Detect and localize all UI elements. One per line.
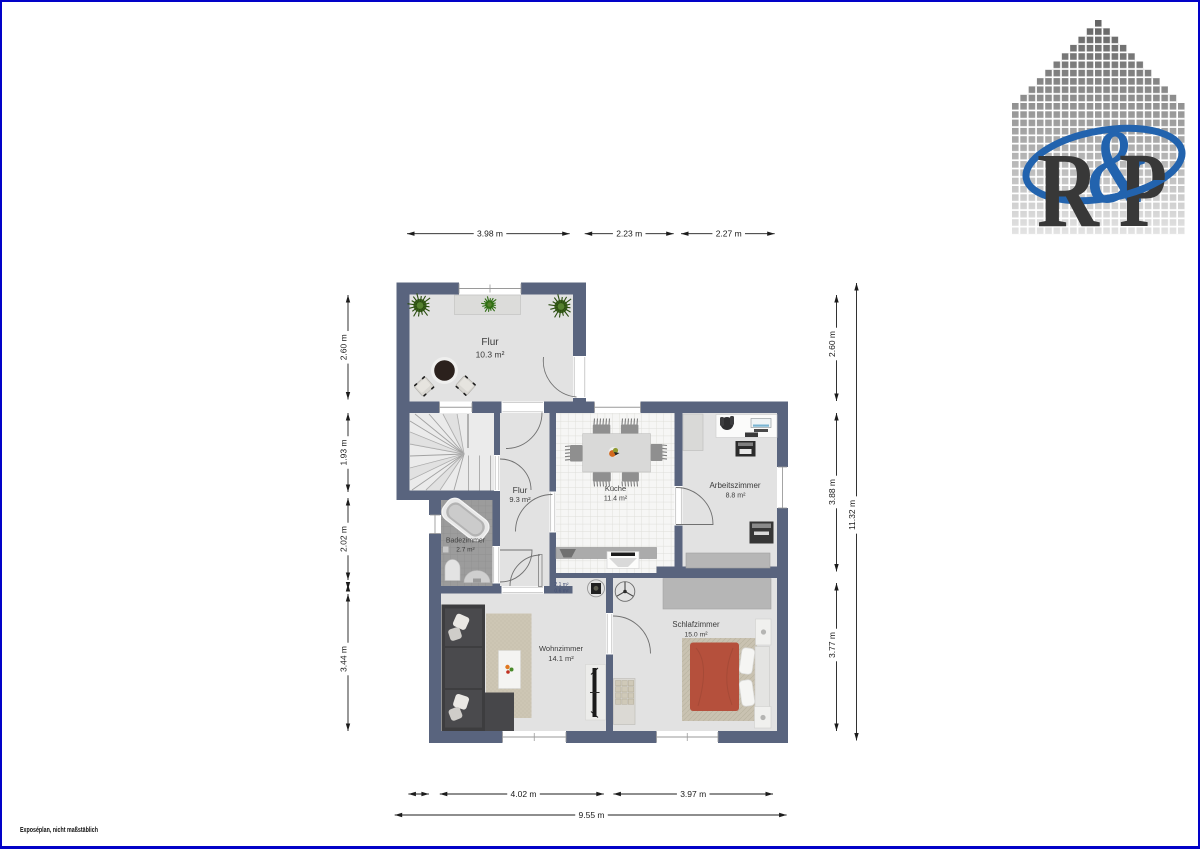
svg-text:11.4 m²: 11.4 m² [604,496,628,503]
svg-text:Flur: Flur [513,485,528,495]
svg-text:Küche: Küche [605,484,626,493]
svg-text:0.6 m²: 0.6 m² [554,589,569,595]
svg-text:Schlafzimmer: Schlafzimmer [672,620,720,629]
svg-text:9.3 m²: 9.3 m² [509,495,531,504]
svg-text:Wohnzimmer: Wohnzimmer [539,644,584,653]
svg-text:15.0 m²: 15.0 m² [684,632,708,639]
svg-text:3.44 m: 3.44 m [339,646,349,672]
svg-text:Flur: Flur [481,337,499,348]
svg-text:8.8 m²: 8.8 m² [726,493,747,500]
svg-text:Badezimmer: Badezimmer [446,538,486,545]
svg-text:2.60 m: 2.60 m [827,331,837,357]
svg-text:Arbeitszimmer: Arbeitszimmer [709,481,760,490]
svg-text:3.77 m: 3.77 m [827,632,837,658]
svg-text:2.7 m²: 2.7 m² [456,547,475,554]
svg-text:2.60 m: 2.60 m [339,334,349,360]
svg-text:1.93 m: 1.93 m [339,440,349,466]
svg-text:2.02 m: 2.02 m [339,526,349,552]
svg-text:4.02 m: 4.02 m [511,789,537,799]
svg-text:R: R [1037,132,1100,250]
svg-text:3.98 m: 3.98 m [477,229,503,239]
svg-text:10.3 m²: 10.3 m² [476,350,505,360]
svg-text:3.97 m: 3.97 m [680,789,706,799]
svg-text:9.55 m: 9.55 m [579,810,605,820]
svg-text:2.23 m: 2.23 m [616,229,642,239]
svg-text:Exposéplan, nicht maßstäblich: Exposéplan, nicht maßstäblich [20,827,98,834]
svg-text:14.1 m²: 14.1 m² [548,654,574,663]
svg-text:11.32 m: 11.32 m [847,500,857,530]
svg-text:3.88 m: 3.88 m [827,479,837,505]
svg-text:2.27 m: 2.27 m [716,229,742,239]
svg-text:2.1 m²: 2.1 m² [554,582,569,588]
